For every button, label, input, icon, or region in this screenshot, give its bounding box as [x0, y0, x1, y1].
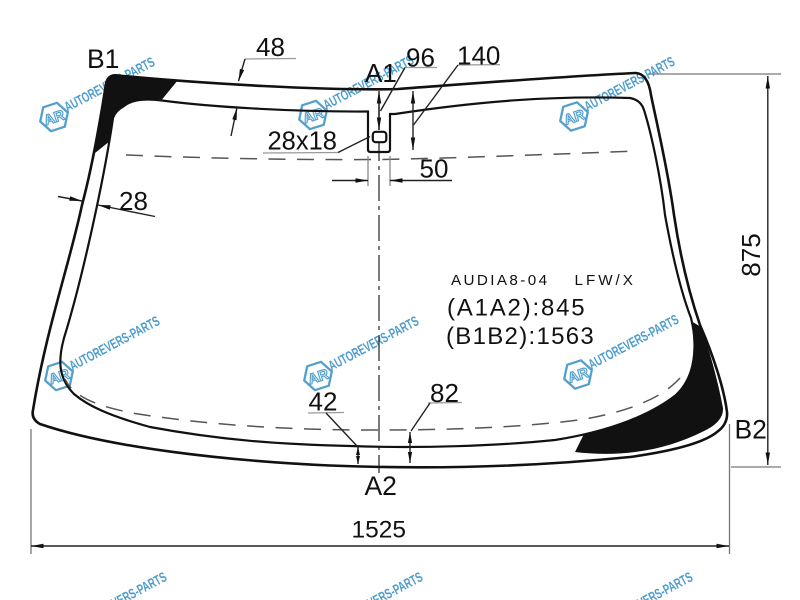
svg-text:1525: 1525: [352, 517, 407, 544]
svg-text:48: 48: [256, 32, 285, 62]
svg-text:96: 96: [406, 43, 435, 73]
svg-text:B2: B2: [735, 415, 767, 445]
svg-text:A2: A2: [365, 471, 397, 501]
svg-text:AUDIA8-04: AUDIA8-04: [451, 272, 549, 289]
svg-text:(A1A2):845: (A1A2):845: [447, 295, 586, 322]
svg-text:50: 50: [420, 154, 449, 184]
svg-text:875: 875: [736, 233, 766, 276]
svg-text:B1: B1: [87, 44, 119, 74]
svg-text:140: 140: [457, 41, 500, 71]
svg-text:(B1B2):1563: (B1B2):1563: [446, 323, 595, 350]
svg-text:LFW/X: LFW/X: [575, 272, 636, 289]
svg-text:28: 28: [119, 186, 148, 216]
svg-text:A1: A1: [365, 58, 397, 88]
svg-text:82: 82: [430, 378, 459, 408]
svg-text:42: 42: [309, 387, 338, 417]
svg-text:28x18: 28x18: [268, 128, 337, 156]
